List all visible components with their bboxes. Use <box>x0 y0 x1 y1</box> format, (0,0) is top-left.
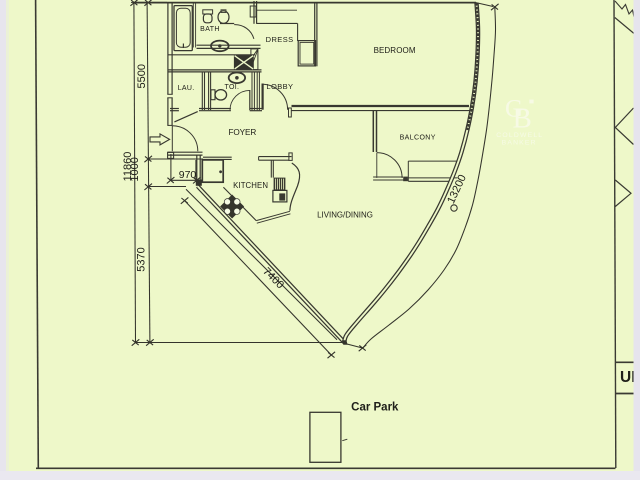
svg-text:FOYER: FOYER <box>228 128 256 137</box>
svg-text:LAU.: LAU. <box>178 85 195 92</box>
svg-text:1000: 1000 <box>129 157 141 181</box>
svg-text:B: B <box>513 103 532 135</box>
svg-text:TOI.: TOI. <box>225 84 240 91</box>
svg-text:BANKER: BANKER <box>502 139 537 146</box>
svg-text:970: 970 <box>179 169 197 181</box>
svg-text:DRESS: DRESS <box>266 35 294 44</box>
svg-text:KITCHEN: KITCHEN <box>233 181 268 190</box>
svg-text:BEDROOM: BEDROOM <box>374 46 416 55</box>
svg-text:5370: 5370 <box>136 247 148 271</box>
svg-text:BALCONY: BALCONY <box>400 134 436 141</box>
svg-text:5500: 5500 <box>136 64 148 88</box>
svg-text:LOBBY: LOBBY <box>266 82 293 91</box>
svg-text:COLDWELL: COLDWELL <box>496 132 543 139</box>
svg-text:BATH: BATH <box>200 26 220 33</box>
svg-text:LIVING/DINING: LIVING/DINING <box>317 210 373 219</box>
svg-text:Car Park: Car Park <box>351 402 399 414</box>
